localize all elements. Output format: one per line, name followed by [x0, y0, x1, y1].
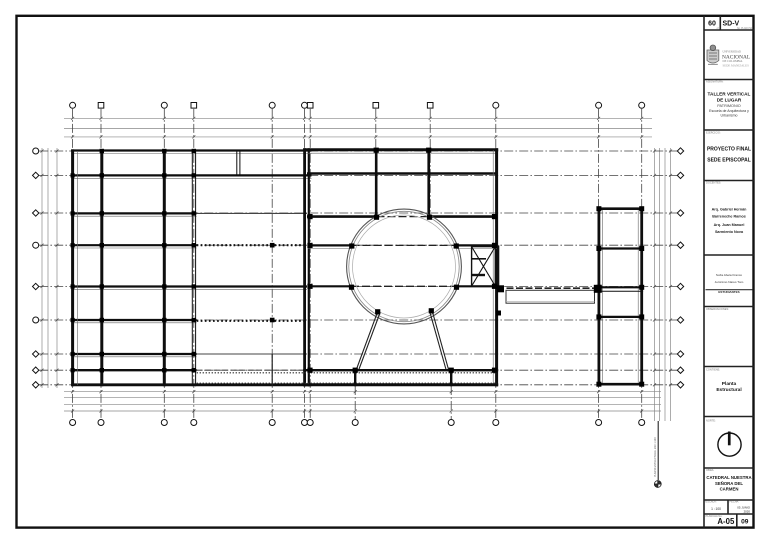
svg-text:SEDE EPISCOPAL: SEDE EPISCOPAL	[707, 158, 751, 164]
svg-text:Jerónimo Nares Toro: Jerónimo Nares Toro	[715, 280, 744, 284]
svg-text:Estructural: Estructural	[716, 387, 741, 393]
svg-text:TALLER VERTICAL: TALLER VERTICAL	[708, 92, 751, 97]
svg-text:Escuela de Arquitectura y: Escuela de Arquitectura y	[709, 109, 749, 113]
svg-text:UNIVERSIDAD: UNIVERSIDAD	[723, 51, 741, 54]
svg-text:Planta: Planta	[722, 381, 737, 387]
svg-text:Arq. Gabriel Hernán: Arq. Gabriel Hernán	[712, 208, 748, 212]
svg-text:PROYECTO FINAL: PROYECTO FINAL	[707, 147, 751, 153]
svg-text:SEDE MANIZALES: SEDE MANIZALES	[723, 63, 750, 67]
svg-text:DOCENTES:: DOCENTES:	[706, 181, 721, 185]
svg-text:PLANTA ESTRUCTURAL ESC 1:100: PLANTA ESTRUCTURAL ESC 1:100	[654, 437, 657, 477]
svg-text:60: 60	[708, 21, 716, 28]
svg-text:Arq. Juan Manuel: Arq. Juan Manuel	[714, 223, 745, 227]
svg-text:Sarmiento Nova: Sarmiento Nova	[715, 230, 744, 234]
svg-text:Barreneche Ramos: Barreneche Ramos	[712, 215, 746, 219]
svg-text:ESTUDIANTES: ESTUDIANTES	[718, 290, 739, 294]
svg-text:CONTIENE:: CONTIENE:	[706, 367, 720, 371]
svg-text:NORTE:: NORTE:	[706, 418, 716, 422]
svg-text:A-05: A-05	[717, 517, 735, 526]
svg-text:PATRIMONIO: PATRIMONIO	[717, 104, 741, 108]
svg-text:SD-V: SD-V	[723, 21, 740, 28]
svg-text:DE LUGAR: DE LUGAR	[717, 98, 742, 103]
svg-text:Urbanismo: Urbanismo	[721, 114, 738, 118]
svg-text:No. PLANCHA: No. PLANCHA	[737, 27, 753, 30]
svg-text:CATEDRAL NUESTRA: CATEDRAL NUESTRA	[706, 475, 751, 480]
svg-text:ASIGNATURA:: ASIGNATURA:	[706, 80, 724, 84]
svg-text:1 : 100: 1 : 100	[711, 507, 721, 511]
svg-text:FECHA:: FECHA:	[730, 500, 740, 504]
svg-text:2020: 2020	[744, 510, 751, 514]
svg-text:OBSERVACIONES:: OBSERVACIONES:	[706, 307, 729, 311]
svg-text:EJERCICIO:: EJERCICIO:	[706, 131, 721, 135]
svg-text:OBRA:: OBRA:	[706, 468, 714, 472]
svg-text:CARMEN: CARMEN	[720, 487, 739, 492]
svg-text:09: 09	[741, 519, 749, 526]
svg-text:ESCALA:: ESCALA:	[706, 500, 717, 504]
svg-text:SEÑORA DEL: SEÑORA DEL	[715, 481, 743, 486]
svg-text:Sofía Abela Franco: Sofía Abela Franco	[716, 273, 743, 277]
